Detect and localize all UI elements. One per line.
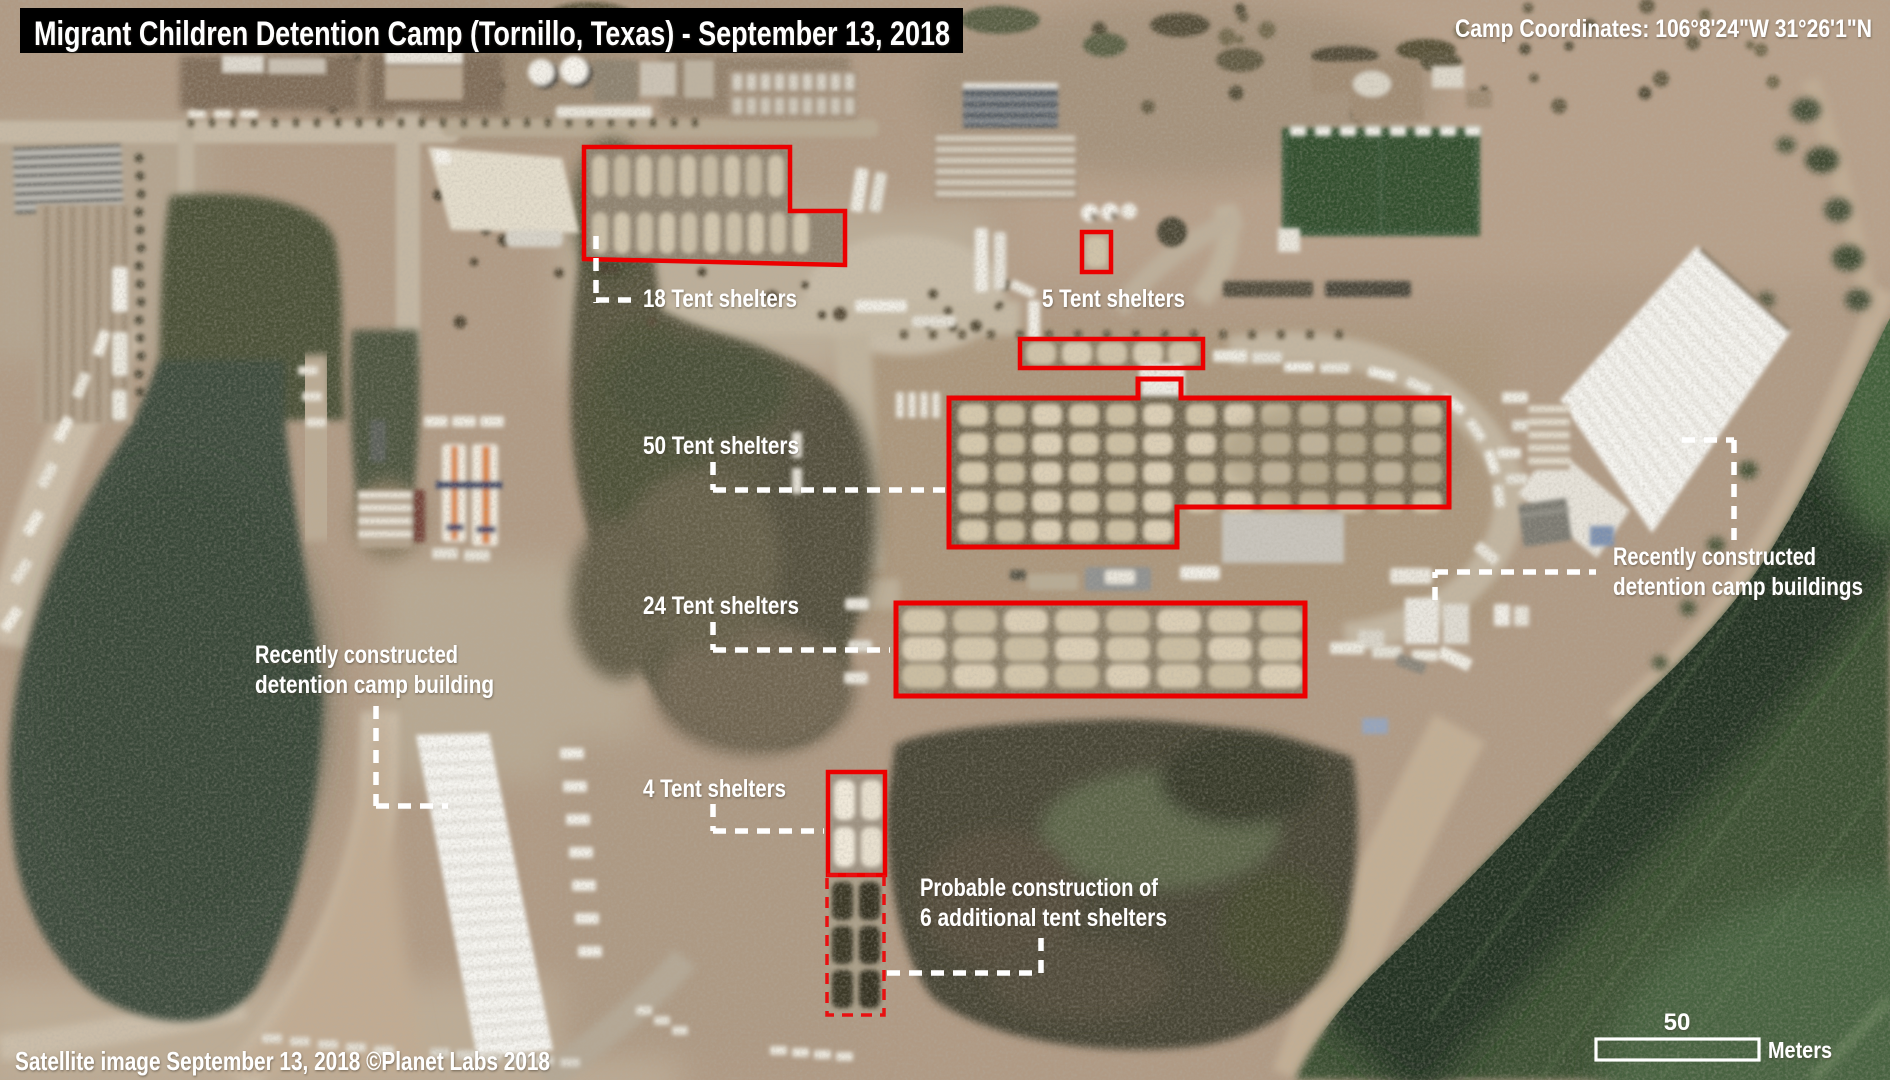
svg-text:Migrant Children Detention Cam: Migrant Children Detention Camp (Tornill… [34,15,950,53]
svg-text:6 additional tent shelters: 6 additional tent shelters [920,904,1167,932]
svg-text:detention camp buildings: detention camp buildings [1613,573,1863,601]
svg-text:18 Tent shelters: 18 Tent shelters [643,285,797,313]
svg-text:Recently constructed: Recently constructed [1613,543,1816,571]
svg-text:24 Tent shelters: 24 Tent shelters [643,592,799,620]
svg-text:Satellite image September 13,: Satellite image September 13, 2018 ©Plan… [15,1046,550,1076]
svg-text:Camp Coordinates: 106°8'24"W 3: Camp Coordinates: 106°8'24"W 31°26'1"N [1455,15,1872,43]
svg-text:5 Tent shelters: 5 Tent shelters [1042,285,1185,313]
svg-text:Probable construction of: Probable construction of [920,874,1159,902]
svg-text:Meters: Meters [1768,1037,1832,1063]
svg-text:50 Tent shelters: 50 Tent shelters [643,432,799,460]
svg-text:Recently constructed: Recently constructed [255,641,458,669]
svg-text:50: 50 [1664,1009,1691,1036]
svg-text:4 Tent shelters: 4 Tent shelters [643,775,786,803]
svg-text:detention camp building: detention camp building [255,671,494,699]
